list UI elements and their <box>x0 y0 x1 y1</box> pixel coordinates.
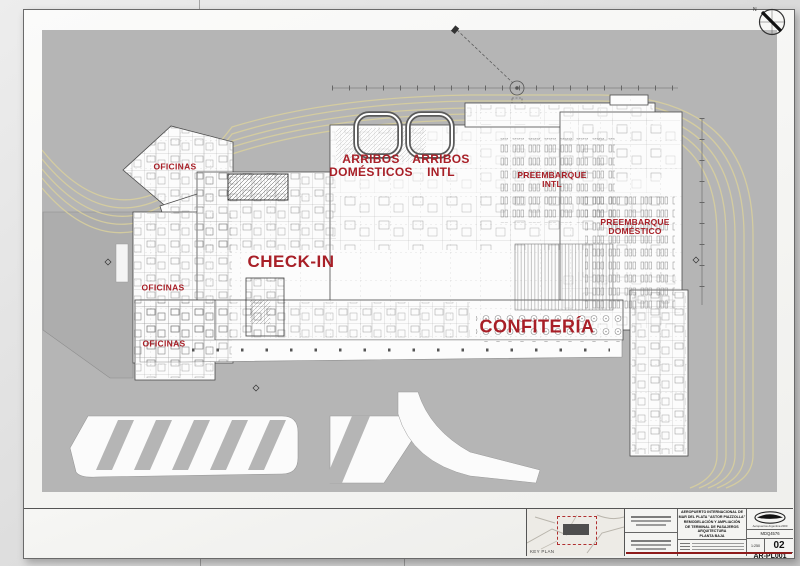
confiteria-tables <box>476 315 624 342</box>
title-block-right: Aeropuertos Argentina 2000 MDQ4576 1:250… <box>747 509 793 556</box>
drawing-number: AR-PL001 <box>747 553 793 560</box>
title-block-center: AEROPUERTO INTERNACIONAL DE MAR DEL PLAT… <box>678 509 747 556</box>
revision-number: 02 <box>765 539 793 552</box>
north-label: N <box>753 7 757 13</box>
doc-code: MDQ4576 <box>747 530 793 539</box>
parking-island-striped <box>70 416 298 477</box>
title-block-stamps <box>625 509 678 556</box>
key-plan-highlight <box>557 516 597 545</box>
airline-logo-icon <box>753 511 787 524</box>
floor-plan-drawing: N <box>0 0 800 566</box>
screenshot-root: N OFICINAS ARRIBOS DOMÉSTICOS ARRIBOS IN… <box>0 0 800 566</box>
title-strip: KEY PLAN AEROPUERTO INTERNACIONAL DE MAR… <box>24 508 793 556</box>
title-block-red-line <box>626 552 792 554</box>
notes-panel <box>24 509 527 556</box>
key-plan-building <box>563 524 589 535</box>
stamp-cell <box>625 509 677 533</box>
key-plan-label: KEY PLAN <box>530 549 554 554</box>
title-block: AEROPUERTO INTERNACIONAL DE MAR DEL PLAT… <box>625 509 793 556</box>
scale-value: 1:250 <box>747 539 765 552</box>
key-plan-panel: KEY PLAN <box>527 509 625 556</box>
project-title: AEROPUERTO INTERNACIONAL DE MAR DEL PLAT… <box>678 509 746 540</box>
logo-cell: Aeropuertos Argentina 2000 <box>747 509 793 530</box>
logo-text: Aeropuertos Argentina 2000 <box>753 524 788 528</box>
